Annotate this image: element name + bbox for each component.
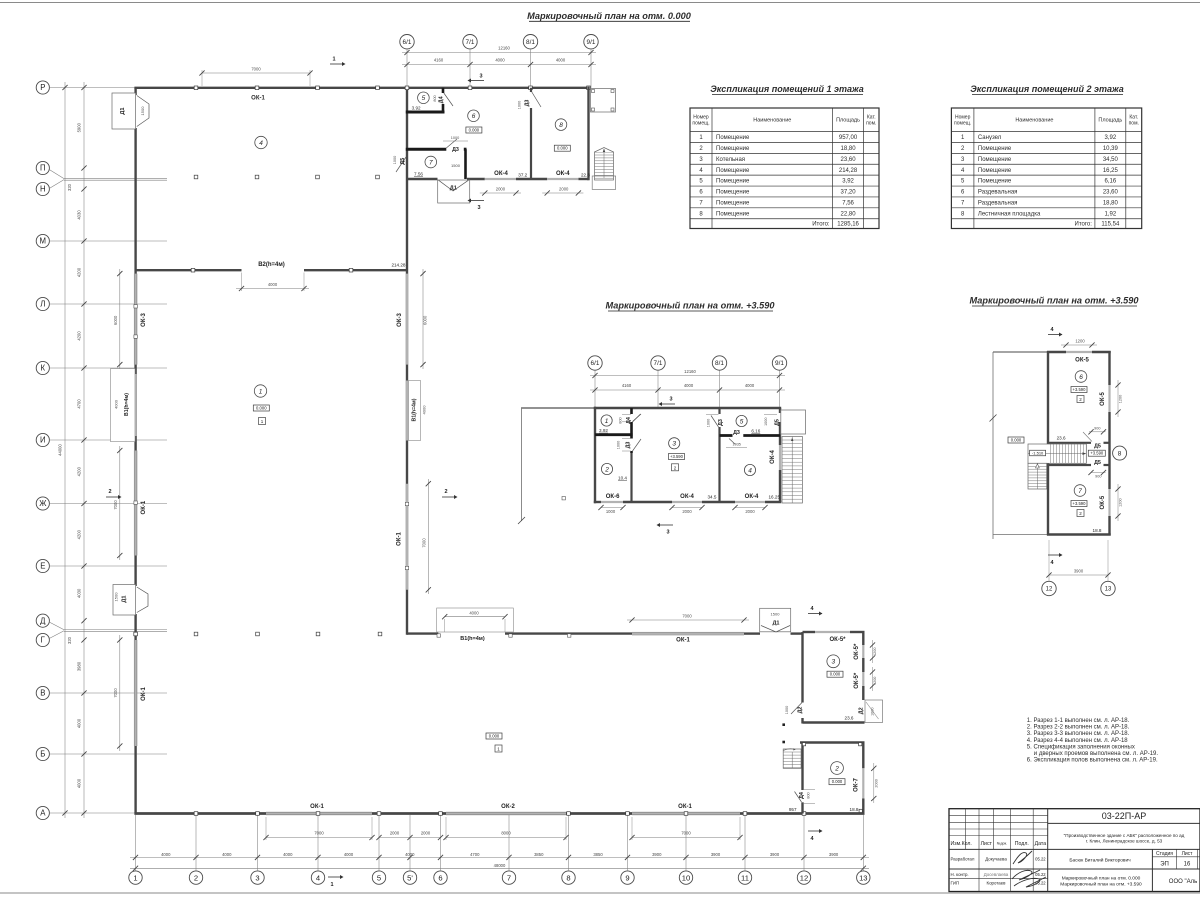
svg-text:0.000: 0.000: [832, 779, 843, 784]
svg-text:Д2: Д2: [797, 707, 803, 714]
svg-text:1500: 1500: [114, 592, 119, 602]
svg-text:2000: 2000: [390, 831, 400, 836]
svg-text:3850: 3850: [534, 852, 544, 857]
svg-text:9/1: 9/1: [775, 360, 784, 367]
svg-text:ОК-4: ОК-4: [494, 171, 508, 177]
svg-text:4: 4: [259, 140, 263, 147]
svg-text:2: 2: [194, 873, 198, 882]
svg-text:+3.590: +3.590: [670, 454, 684, 459]
svg-text:1200: 1200: [1119, 395, 1123, 403]
svg-text:4000: 4000: [161, 852, 171, 857]
svg-text:Помещение: Помещение: [716, 190, 750, 196]
svg-text:22,80: 22,80: [841, 211, 857, 217]
svg-text:г. Клин, Ленинградское шоссе,: г. Клин, Ленинградское шоссе, д. 53: [1086, 839, 1163, 844]
svg-text:Б: Б: [40, 750, 45, 759]
svg-text:115,54: 115,54: [1101, 222, 1120, 228]
svg-text:5: 5: [422, 95, 426, 102]
svg-text:4000: 4000: [77, 778, 82, 788]
svg-text:Помещение: Помещение: [978, 157, 1012, 163]
svg-text:7: 7: [429, 159, 433, 166]
svg-text:16.25: 16.25: [769, 495, 781, 500]
svg-text:ОК-5*: ОК-5*: [830, 637, 847, 643]
svg-text:Д5: Д5: [1094, 460, 1101, 466]
svg-text:7000: 7000: [681, 831, 691, 836]
svg-text:Д3: Д3: [525, 100, 531, 107]
svg-text:9/1: 9/1: [587, 39, 596, 46]
svg-text:+3.590: +3.590: [1073, 501, 1087, 506]
svg-text:10,39: 10,39: [1103, 146, 1119, 152]
svg-text:Д1: Д1: [450, 186, 457, 192]
svg-text:7000: 7000: [422, 538, 427, 548]
svg-text:Д3: Д3: [626, 442, 632, 449]
svg-text:Экспликация помещений 2 этажа: Экспликация помещений 2 этажа: [970, 84, 1123, 94]
svg-text:Н: Н: [40, 185, 46, 194]
svg-text:1000: 1000: [393, 156, 397, 164]
svg-text:ОК-4: ОК-4: [680, 494, 694, 500]
svg-text:ГИП: ГИП: [951, 881, 960, 886]
svg-text:900: 900: [1095, 475, 1101, 479]
svg-text:Наименование: Наименование: [753, 118, 791, 124]
svg-text:6.16: 6.16: [751, 428, 760, 433]
svg-text:1: 1: [133, 873, 137, 882]
svg-text:Наименование: Наименование: [1015, 118, 1053, 124]
svg-text:4: 4: [748, 467, 752, 474]
svg-text:1285,16: 1285,16: [837, 222, 859, 228]
svg-text:1: 1: [332, 57, 335, 63]
svg-text:2000: 2000: [745, 509, 755, 514]
svg-text:2000: 2000: [559, 187, 569, 192]
svg-text:Помещение: Помещение: [978, 146, 1012, 152]
svg-text:В1(h=4м): В1(h=4м): [124, 393, 130, 416]
svg-text:ОК-4: ОК-4: [745, 494, 759, 500]
svg-text:В: В: [40, 689, 45, 698]
svg-text:8/1: 8/1: [715, 360, 724, 367]
svg-text:6: 6: [1079, 374, 1083, 381]
svg-text:7000: 7000: [251, 67, 261, 72]
svg-text:Д1: Д1: [122, 595, 128, 602]
svg-text:ОК-1: ОК-1: [310, 804, 324, 810]
svg-text:4200: 4200: [77, 331, 82, 341]
svg-text:№док.: №док.: [997, 842, 1008, 846]
svg-text:3. Разрез 3-3 выполнен см. л.: 3. Разрез 3-3 выполнен см. л. АР-18.: [1027, 731, 1130, 737]
svg-text:Помещение: Помещение: [716, 179, 750, 185]
svg-text:П: П: [40, 164, 46, 173]
svg-text:4200: 4200: [77, 267, 82, 277]
svg-text:6: 6: [438, 873, 442, 882]
svg-text:ОК-5*: ОК-5*: [854, 643, 860, 660]
svg-text:1500: 1500: [140, 106, 145, 116]
svg-text:6,16: 6,16: [1105, 179, 1117, 185]
svg-text:4000: 4000: [268, 282, 278, 287]
svg-text:4000: 4000: [283, 852, 293, 857]
svg-text:8000: 8000: [501, 831, 511, 836]
svg-text:23,60: 23,60: [841, 157, 857, 163]
svg-text:2: 2: [444, 489, 447, 495]
svg-text:4: 4: [316, 873, 320, 882]
svg-text:В2(h=4м): В2(h=4м): [258, 262, 285, 268]
svg-text:Д4: Д4: [438, 96, 444, 103]
svg-text:23,60: 23,60: [1103, 190, 1119, 196]
svg-text:5: 5: [740, 418, 744, 425]
svg-text:3900: 3900: [770, 852, 780, 857]
svg-text:5': 5': [407, 873, 413, 882]
svg-text:Д3: Д3: [452, 147, 459, 153]
svg-text:Итого:: Итого:: [1075, 222, 1093, 228]
svg-text:ОК-1: ОК-1: [141, 500, 147, 514]
svg-text:1200: 1200: [1119, 498, 1123, 506]
svg-text:23.6: 23.6: [1057, 436, 1066, 441]
svg-text:Ж: Ж: [39, 499, 47, 508]
svg-text:1200: 1200: [873, 647, 877, 655]
svg-text:3: 3: [255, 873, 259, 882]
svg-text:3: 3: [477, 205, 480, 211]
svg-text:1000: 1000: [706, 419, 710, 427]
svg-text:Помещение: Помещение: [978, 168, 1012, 174]
svg-text:Санузел: Санузел: [978, 135, 1002, 141]
svg-text:Стадия: Стадия: [1156, 851, 1173, 857]
svg-text:1500: 1500: [771, 612, 781, 617]
svg-text:7000: 7000: [113, 500, 118, 510]
svg-text:0.000: 0.000: [489, 734, 500, 739]
svg-text:6/1: 6/1: [591, 360, 600, 367]
svg-text:Разработал: Разработал: [951, 857, 975, 862]
svg-text:ОК-2: ОК-2: [501, 804, 515, 810]
svg-text:12: 12: [1046, 587, 1053, 593]
svg-text:4000: 4000: [684, 383, 694, 388]
svg-text:Л: Л: [40, 300, 45, 309]
svg-text:8: 8: [1118, 450, 1122, 457]
svg-text:6000: 6000: [423, 315, 428, 325]
svg-text:М: М: [40, 237, 47, 246]
svg-text:Площадь: Площадь: [836, 118, 860, 124]
svg-text:Экспликация помещений 1 этажа: Экспликация помещений 1 этажа: [710, 84, 863, 94]
svg-text:3: 3: [666, 530, 669, 536]
svg-text:12160: 12160: [684, 369, 696, 374]
svg-text:4000: 4000: [495, 58, 505, 63]
svg-text:1. Разрез 1-1 выполнен см. л.: 1. Разрез 1-1 выполнен см. л. АР-18.: [1027, 718, 1130, 724]
svg-text:1000: 1000: [451, 136, 459, 140]
svg-text:13: 13: [1105, 587, 1112, 593]
svg-text:0.000: 0.000: [1011, 438, 1022, 443]
svg-text:3,92: 3,92: [842, 179, 854, 185]
svg-text:Коротаев: Коротаев: [987, 881, 1007, 886]
svg-text:18.8: 18.8: [850, 807, 859, 812]
svg-text:В1(h=4м): В1(h=4м): [412, 398, 418, 421]
svg-text:12: 12: [800, 873, 808, 882]
svg-text:4. Разрез 4-4 выполнен см. л.: 4. Разрез 4-4 выполнен см. л. АР-18: [1027, 738, 1129, 744]
svg-text:Помещение: Помещение: [716, 168, 750, 174]
svg-text:ОК-6: ОК-6: [606, 494, 620, 500]
svg-text:05.22: 05.22: [1035, 857, 1046, 862]
svg-text:2000: 2000: [421, 831, 431, 836]
svg-text:Маркировочный план на отм. +3.: Маркировочный план на отм. +3.590: [969, 296, 1139, 306]
svg-text:ОК-4: ОК-4: [770, 450, 776, 464]
svg-text:1000: 1000: [518, 101, 522, 109]
svg-text:Басюк Виталий Викторович: Басюк Виталий Викторович: [1069, 857, 1131, 864]
svg-text:3: 3: [479, 74, 482, 80]
svg-text:4000: 4000: [77, 718, 82, 728]
svg-text:Е: Е: [40, 562, 45, 571]
svg-text:4000: 4000: [745, 383, 755, 388]
svg-text:1000: 1000: [606, 509, 616, 514]
svg-text:Помещение: Помещение: [716, 135, 750, 141]
svg-text:ОК-1: ОК-1: [676, 638, 690, 644]
svg-text:1000: 1000: [871, 707, 875, 715]
svg-text:6. Экспликация полов выполнена: 6. Экспликация полов выполнена см. л. АР…: [1027, 758, 1158, 764]
svg-text:1: 1: [330, 882, 333, 888]
svg-text:10: 10: [682, 873, 690, 882]
svg-text:9: 9: [625, 873, 629, 882]
svg-text:ОК-3: ОК-3: [141, 313, 147, 327]
svg-text:3: 3: [831, 659, 835, 666]
svg-text:4000: 4000: [222, 852, 232, 857]
svg-text:1200: 1200: [1075, 339, 1085, 344]
svg-text:Помещение: Помещение: [716, 146, 750, 152]
svg-text:2. Разрез 2-2 выполнен см. л.: 2. Разрез 2-2 выполнен см. л. АР-18.: [1027, 725, 1130, 731]
svg-text:22.8: 22.8: [581, 173, 590, 178]
svg-text:5: 5: [377, 873, 381, 882]
svg-text:ОК-5*: ОК-5*: [854, 672, 860, 689]
svg-text:34.5: 34.5: [708, 495, 717, 500]
svg-text:3900: 3900: [711, 852, 721, 857]
svg-text:214.28: 214.28: [391, 262, 405, 267]
svg-text:И: И: [40, 436, 46, 445]
svg-text:4000: 4000: [405, 852, 415, 857]
svg-text:Досевлаева: Досевлаева: [984, 872, 1009, 877]
svg-text:Д3: Д3: [733, 430, 740, 436]
svg-text:Помещение: Помещение: [716, 200, 750, 206]
svg-text:Дата: Дата: [1035, 841, 1047, 847]
svg-text:4200: 4200: [77, 466, 82, 476]
svg-text:Площадь: Площадь: [1098, 118, 1122, 124]
svg-text:ОК-5: ОК-5: [1100, 392, 1106, 406]
svg-text:7/1: 7/1: [466, 39, 475, 46]
svg-text:ОК-7: ОК-7: [854, 778, 860, 792]
svg-text:1000: 1000: [617, 441, 621, 449]
svg-text:4030: 4030: [77, 210, 82, 220]
svg-text:3980: 3980: [77, 661, 82, 671]
svg-text:6: 6: [472, 113, 476, 120]
svg-text:Д5: Д5: [400, 158, 406, 165]
svg-text:2: 2: [108, 489, 111, 495]
svg-text:1,92: 1,92: [1105, 211, 1117, 217]
svg-text:6/1: 6/1: [403, 39, 412, 46]
svg-text:4030: 4030: [77, 588, 82, 598]
svg-text:Н. контр.: Н. контр.: [951, 872, 969, 877]
svg-text:ОК-1: ОК-1: [678, 804, 692, 810]
svg-text:1: 1: [259, 388, 263, 395]
svg-text:пом.: пом.: [1129, 120, 1139, 126]
svg-text:44000: 44000: [58, 444, 63, 456]
svg-text:320: 320: [67, 636, 72, 644]
svg-text:помещ.: помещ.: [692, 120, 709, 126]
svg-text:-1.510: -1.510: [1032, 451, 1044, 456]
svg-text:ОК-1: ОК-1: [397, 532, 403, 546]
svg-text:Помещение: Помещение: [978, 179, 1012, 185]
svg-text:Подл.: Подл.: [1015, 841, 1029, 847]
svg-text:"Производственное здание с АБК: "Производственное здание с АБК" располож…: [1064, 833, 1185, 838]
svg-text:4160: 4160: [622, 383, 632, 388]
svg-text:7,56: 7,56: [842, 200, 854, 206]
svg-text:03-22П-АР: 03-22П-АР: [1102, 811, 1147, 821]
svg-text:7000: 7000: [682, 614, 692, 619]
svg-text:+3.590: +3.590: [1090, 451, 1104, 456]
svg-text:05.22: 05.22: [1035, 872, 1046, 877]
svg-text:0.000: 0.000: [557, 146, 568, 151]
svg-text:8: 8: [566, 873, 570, 882]
svg-text:8: 8: [559, 122, 563, 129]
svg-text:800: 800: [807, 792, 811, 798]
svg-text:Д4: Д4: [626, 417, 632, 424]
svg-text:18,80: 18,80: [1103, 200, 1119, 206]
svg-text:7.56: 7.56: [414, 172, 423, 177]
svg-text:Маркировочный план на отм. +3.: Маркировочный план на отм. +3.590: [1060, 881, 1142, 888]
svg-text:1000: 1000: [785, 706, 789, 714]
svg-text:4000: 4000: [344, 852, 354, 857]
svg-text:8/1: 8/1: [526, 39, 535, 46]
svg-text:37.2: 37.2: [518, 173, 527, 178]
svg-text:3,92: 3,92: [1105, 135, 1117, 141]
svg-text:Д5: Д5: [775, 419, 781, 426]
svg-text:Д5: Д5: [1094, 444, 1101, 450]
svg-text:4000: 4000: [556, 58, 566, 63]
svg-text:Котельная: Котельная: [716, 157, 745, 163]
svg-text:800: 800: [433, 95, 437, 101]
svg-text:3: 3: [669, 397, 672, 403]
svg-text:4000: 4000: [469, 611, 479, 616]
svg-text:0.000: 0.000: [256, 406, 267, 411]
svg-text:7: 7: [1078, 488, 1082, 495]
svg-text:4200: 4200: [77, 529, 82, 539]
svg-text:Итого:: Итого:: [812, 222, 830, 228]
svg-text:ОК-3: ОК-3: [397, 313, 403, 327]
svg-text:Д3: Д3: [718, 419, 724, 426]
svg-text:В1(h=4м): В1(h=4м): [460, 636, 485, 642]
svg-text:и дверных проемов выполнена см: и дверных проемов выполнена см. л. АР-19…: [1034, 751, 1159, 757]
svg-text:7: 7: [507, 873, 511, 882]
svg-text:5900: 5900: [77, 122, 82, 132]
svg-text:3850: 3850: [593, 852, 603, 857]
svg-text:К: К: [41, 364, 46, 373]
svg-text:2000: 2000: [682, 509, 692, 514]
svg-text:48000: 48000: [494, 863, 506, 868]
svg-text:2000: 2000: [874, 779, 878, 787]
svg-text:957,00: 957,00: [839, 135, 858, 141]
svg-text:1035: 1035: [732, 443, 740, 447]
svg-text:ОК-4: ОК-4: [556, 171, 570, 177]
svg-text:18.8: 18.8: [1093, 528, 1102, 533]
svg-text:+3.590: +3.590: [1073, 387, 1087, 392]
svg-text:Маркировочный план на отм. 0.0: Маркировочный план на отм. 0.000: [527, 11, 692, 21]
svg-text:4700: 4700: [470, 852, 480, 857]
svg-text:16: 16: [1184, 862, 1191, 868]
svg-text:0.000: 0.000: [830, 672, 841, 677]
svg-text:6000: 6000: [113, 315, 118, 325]
svg-text:16,25: 16,25: [1103, 168, 1119, 174]
svg-text:Маркировочный план на отм. 0.0: Маркировочный план на отм. 0.000: [1062, 875, 1141, 882]
svg-text:957: 957: [789, 807, 797, 812]
svg-text:4000: 4000: [422, 405, 427, 415]
svg-text:Лист: Лист: [1182, 851, 1194, 857]
svg-text:Маркировочный план на отм. +3.: Маркировочный план на отм. +3.590: [605, 301, 775, 311]
svg-text:помещ.: помещ.: [954, 120, 971, 126]
svg-text:4000: 4000: [114, 399, 119, 409]
svg-text:3900: 3900: [652, 852, 662, 857]
svg-text:ОК-1: ОК-1: [141, 687, 147, 701]
svg-text:320: 320: [67, 183, 72, 191]
svg-text:34,50: 34,50: [1103, 157, 1119, 163]
svg-text:Докучаева: Докучаева: [985, 857, 1007, 862]
svg-text:800: 800: [619, 417, 623, 423]
svg-text:А: А: [40, 809, 46, 818]
svg-text:1500: 1500: [451, 163, 461, 168]
svg-text:11: 11: [741, 873, 749, 882]
svg-text:1: 1: [605, 418, 609, 425]
svg-text:Д4: Д4: [799, 792, 805, 799]
svg-text:214,28: 214,28: [839, 168, 858, 174]
svg-text:0.000: 0.000: [469, 128, 480, 133]
svg-text:13: 13: [859, 873, 867, 882]
svg-text:Д1: Д1: [120, 107, 126, 114]
svg-text:Раздевальная: Раздевальная: [978, 200, 1018, 206]
svg-text:2: 2: [834, 765, 839, 772]
svg-text:ЭП: ЭП: [1160, 862, 1169, 868]
svg-text:2000: 2000: [496, 187, 506, 192]
svg-text:Д: Д: [40, 616, 46, 625]
svg-text:3900: 3900: [1074, 569, 1084, 574]
svg-text:3.92: 3.92: [412, 106, 421, 111]
svg-text:900: 900: [1094, 427, 1100, 431]
svg-text:18,80: 18,80: [841, 146, 857, 152]
svg-text:23.6: 23.6: [845, 716, 854, 721]
svg-text:37,20: 37,20: [841, 190, 857, 196]
svg-text:пом.: пом.: [866, 120, 876, 126]
svg-text:12160: 12160: [498, 46, 510, 51]
svg-text:3900: 3900: [829, 852, 839, 857]
svg-text:Раздевальная: Раздевальная: [978, 190, 1018, 196]
svg-text:ОК-1: ОК-1: [251, 96, 265, 102]
svg-text:5. Спецификация заполнения око: 5. Спецификация заполнения оконных: [1027, 744, 1135, 750]
svg-text:Помещение: Помещение: [716, 211, 750, 217]
svg-text:1000: 1000: [764, 417, 768, 425]
svg-text:ОК-5: ОК-5: [1075, 358, 1089, 364]
svg-text:Р: Р: [40, 83, 45, 92]
svg-text:Лестничная площадка: Лестничная площадка: [978, 211, 1041, 217]
svg-text:7/1: 7/1: [654, 360, 663, 367]
svg-text:10.4: 10.4: [618, 476, 627, 481]
svg-text:2: 2: [604, 466, 609, 473]
svg-text:7000: 7000: [314, 831, 324, 836]
svg-text:ООО "Аль: ООО "Аль: [1169, 879, 1197, 885]
svg-text:3: 3: [672, 441, 676, 448]
svg-text:Д2: Д2: [859, 707, 865, 714]
svg-text:ОК-5: ОК-5: [1100, 495, 1106, 509]
svg-text:Изм.Кол.: Изм.Кол.: [951, 841, 972, 847]
svg-text:7000: 7000: [113, 688, 118, 698]
svg-text:4700: 4700: [77, 399, 82, 409]
svg-text:4160: 4160: [434, 58, 444, 63]
svg-text:3.92: 3.92: [599, 428, 608, 433]
svg-text:Д1: Д1: [772, 621, 779, 627]
svg-text:Лист: Лист: [981, 841, 993, 847]
